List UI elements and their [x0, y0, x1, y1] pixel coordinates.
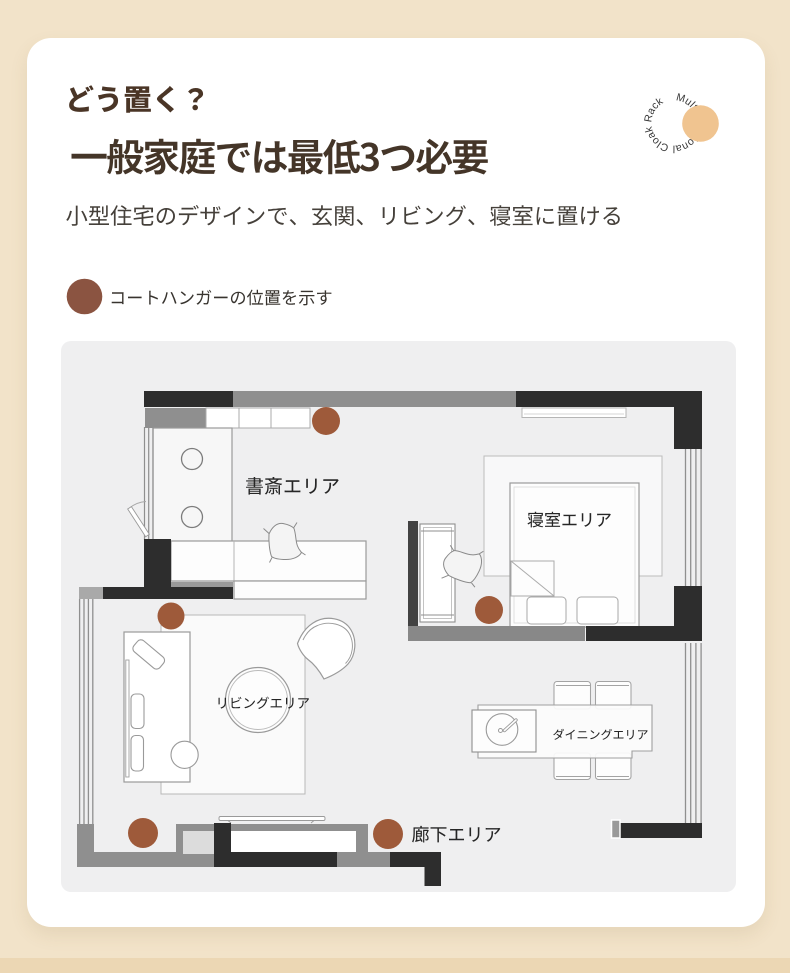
svg-text:l: l [673, 143, 675, 155]
